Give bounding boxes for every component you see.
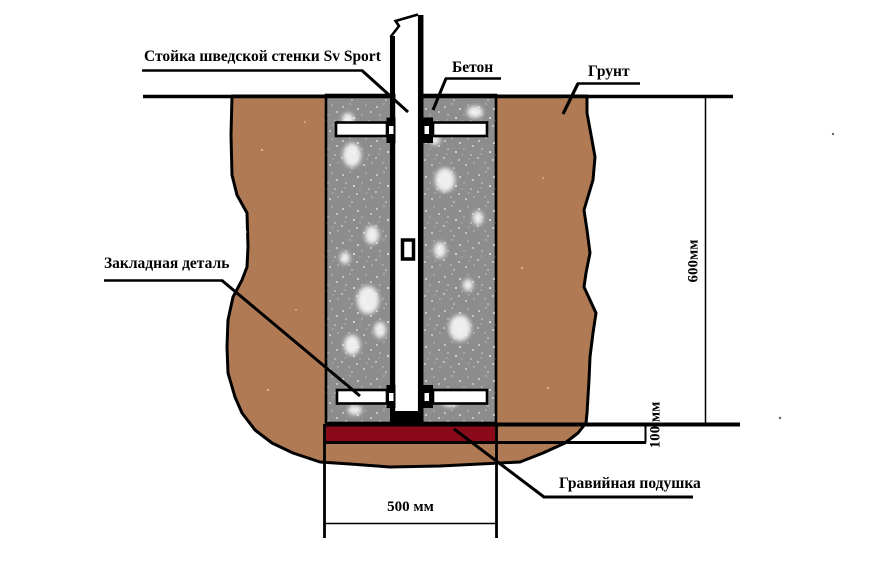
gravel-thickness-dimension-text: 100 мм bbox=[649, 402, 664, 449]
bracket-bar-upper-right bbox=[433, 123, 487, 137]
artifact-dot-bottom bbox=[779, 417, 781, 419]
concrete-label: Бетон bbox=[452, 60, 493, 76]
post-channel bbox=[396, 16, 419, 413]
bracket-notch-upper-left bbox=[389, 126, 394, 134]
bracket-notch-lower-left bbox=[389, 393, 394, 401]
bracket-bar-lower-left bbox=[337, 390, 387, 404]
post-mid-clip bbox=[403, 240, 414, 259]
gravel-pad-label: Гравийная подушка bbox=[559, 476, 701, 492]
post-label: Стойка шведской стенки Sv Sport bbox=[144, 49, 381, 65]
post-bottom-cap bbox=[390, 411, 424, 423]
width-dimension-text: 500 мм bbox=[324, 500, 497, 515]
ground-label: Грунт bbox=[588, 64, 630, 80]
artifact-dot-top bbox=[832, 133, 834, 135]
diagram-drawing bbox=[0, 0, 886, 584]
bracket-notch-lower-right bbox=[425, 393, 430, 401]
foundation-cross-section-diagram: Стойка шведской стенки Sv Sport Бетон Гр… bbox=[0, 0, 886, 584]
bracket-notch-upper-right bbox=[425, 126, 430, 134]
bracket-bar-lower-right bbox=[433, 390, 487, 404]
gravel-region bbox=[326, 427, 495, 442]
depth-dimension-text: 600мм bbox=[687, 240, 702, 283]
embedded-part-label: Закладная деталь bbox=[104, 256, 229, 272]
bracket-bar-upper-left bbox=[336, 123, 387, 137]
